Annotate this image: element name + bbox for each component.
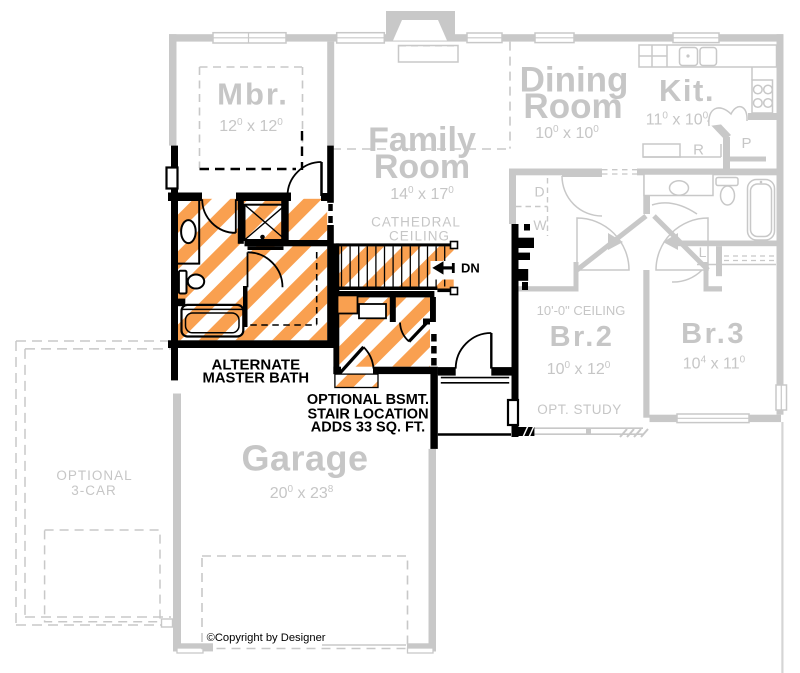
svg-text:Garage: Garage (241, 438, 368, 479)
svg-text:L: L (699, 244, 707, 260)
svg-text:OPTIONAL: OPTIONAL (56, 468, 132, 483)
svg-text:Room: Room (374, 148, 470, 186)
svg-text:110 x 100: 110 x 100 (646, 111, 709, 129)
svg-text:W: W (533, 217, 547, 233)
svg-text:Br.3: Br.3 (681, 318, 746, 350)
svg-text:Mbr.: Mbr. (217, 77, 289, 112)
svg-text:3-CAR: 3-CAR (71, 483, 117, 498)
svg-text:100 x 120: 100 x 120 (547, 360, 611, 378)
svg-text:Room: Room (523, 87, 622, 126)
svg-text:Br.2: Br.2 (550, 321, 615, 353)
svg-text:CEILING: CEILING (389, 229, 450, 244)
svg-text:10'-0" CEILING: 10'-0" CEILING (537, 303, 626, 318)
svg-text:ADDS 33 SQ. FT.: ADDS 33 SQ. FT. (311, 420, 425, 436)
svg-text:200 x 238: 200 x 238 (270, 484, 334, 502)
svg-text:DN: DN (461, 261, 480, 276)
svg-text:D: D (534, 184, 544, 200)
svg-text:MASTER BATH: MASTER BATH (203, 371, 310, 387)
svg-text:120 x 120: 120 x 120 (219, 117, 283, 135)
svg-text:104 x 110: 104 x 110 (683, 355, 746, 373)
svg-text:Kit.: Kit. (659, 73, 715, 108)
svg-text:100 x 100: 100 x 100 (535, 124, 599, 142)
svg-text:OPT. STUDY: OPT. STUDY (537, 402, 622, 417)
svg-text:140 x 170: 140 x 170 (390, 185, 454, 203)
svg-text:R: R (693, 142, 704, 159)
svg-text:P: P (741, 135, 751, 152)
svg-text:CATHEDRAL: CATHEDRAL (371, 215, 461, 230)
svg-text:©Copyright by Designer: ©Copyright by Designer (207, 632, 326, 644)
